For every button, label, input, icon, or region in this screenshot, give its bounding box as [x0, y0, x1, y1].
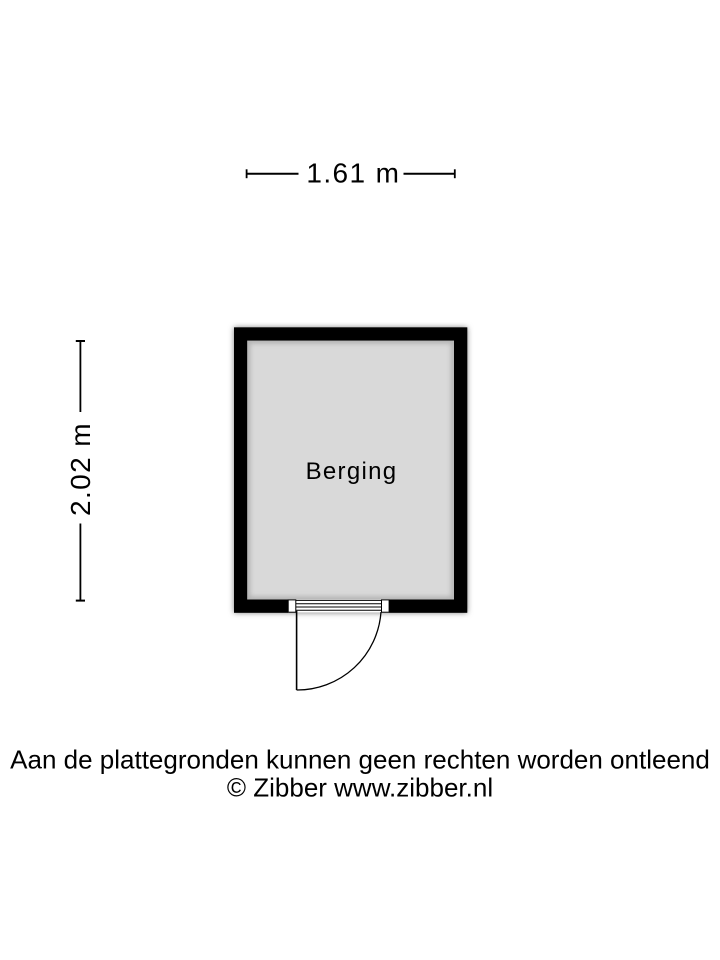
svg-text:© Zibber www.zibber.nl: © Zibber www.zibber.nl: [227, 773, 493, 803]
svg-text:Aan de plattegronden kunnen ge: Aan de plattegronden kunnen geen rechten…: [10, 744, 710, 774]
svg-text:2.02 m: 2.02 m: [65, 422, 96, 516]
svg-text:Berging: Berging: [306, 458, 398, 485]
svg-text:1.61 m: 1.61 m: [306, 158, 400, 189]
